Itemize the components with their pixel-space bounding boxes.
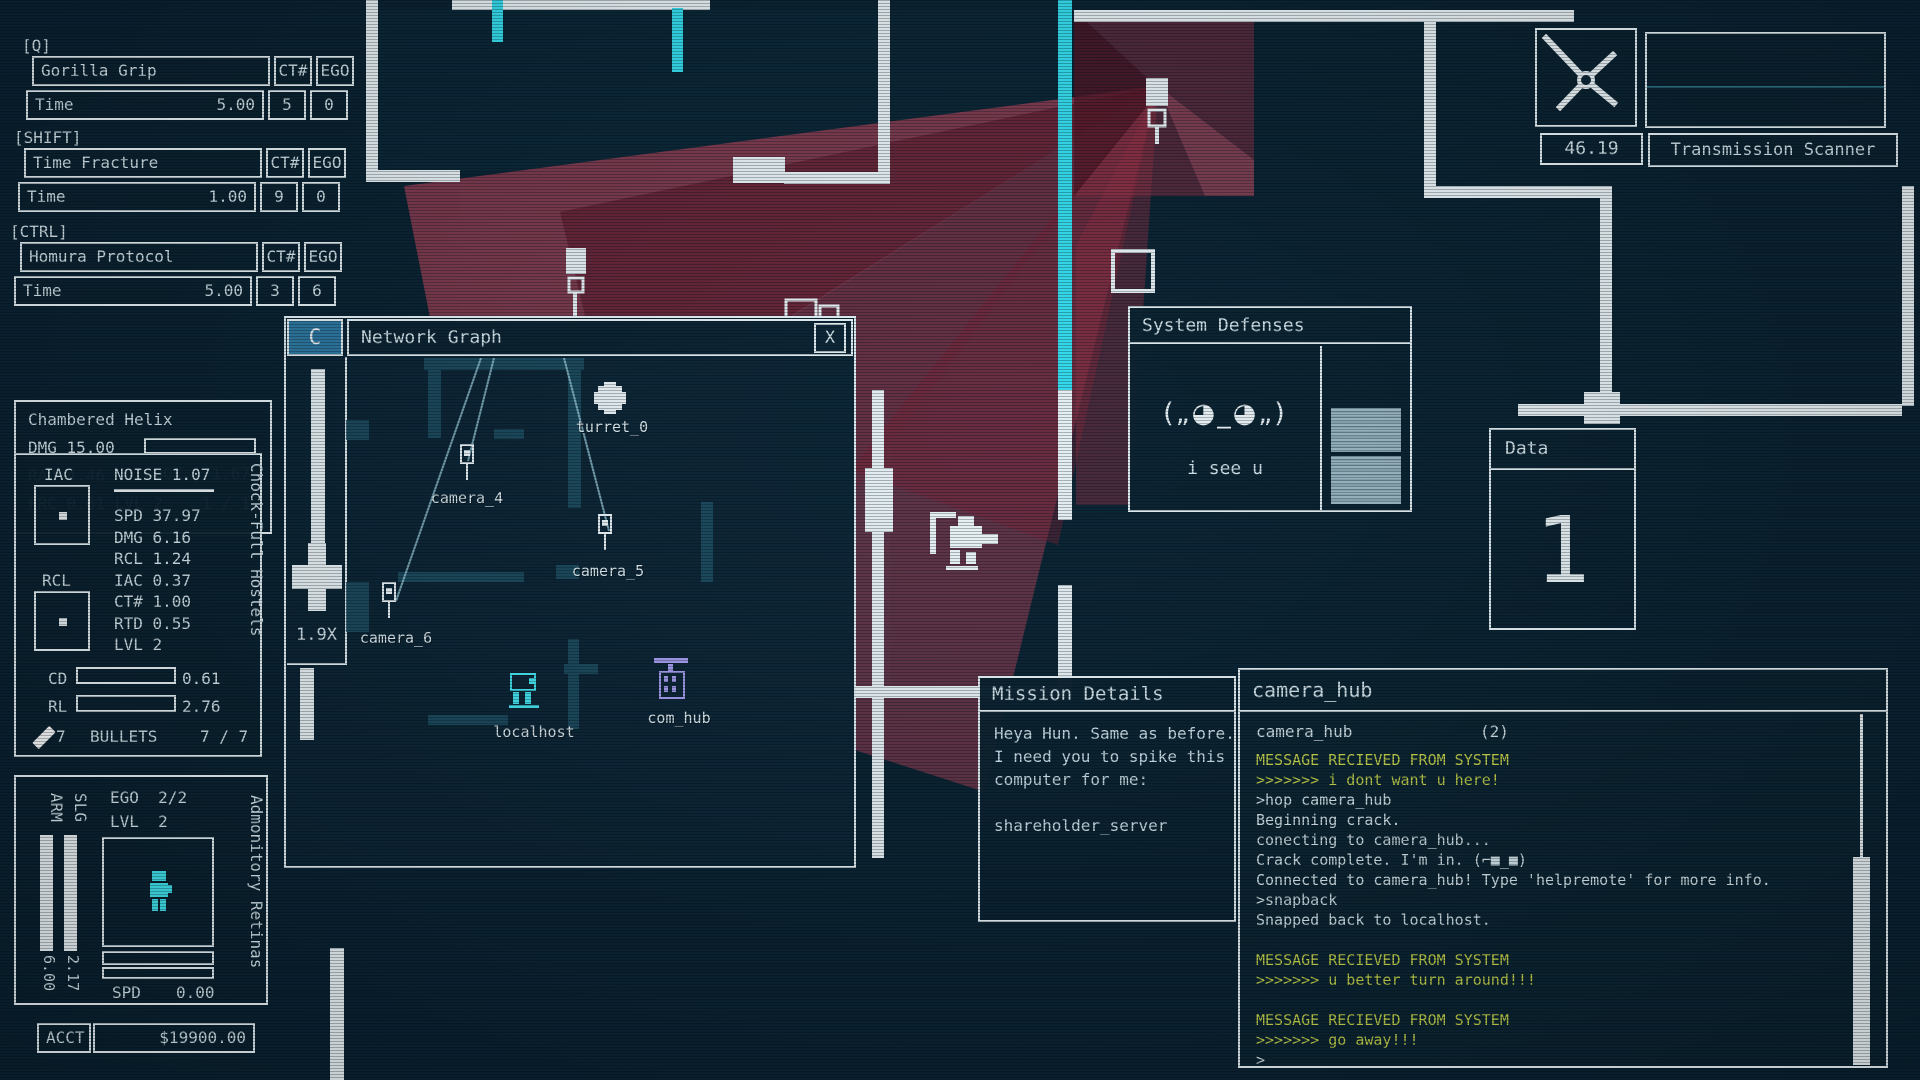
terminal-tab[interactable]: camera_hub — [1256, 722, 1352, 741]
turret-icon[interactable] — [590, 378, 630, 422]
status-bar-2 — [102, 967, 214, 979]
ability-panel-ctrl: [CTRL] Homura Protocol CT# EGO Time5.00 … — [10, 222, 68, 245]
data-count: 1 — [1491, 472, 1634, 628]
ability-key-label: [Q] — [22, 36, 51, 55]
rcl-label: RCL — [42, 571, 71, 590]
terminal-line: conecting to camera_hub... — [1256, 830, 1491, 850]
ego-value: 2/2 — [158, 788, 187, 807]
terminal-titlebar[interactable]: camera_hub — [1240, 670, 1886, 712]
portrait-box — [102, 837, 214, 947]
divider — [1491, 468, 1634, 470]
terminal-line: Crack complete. I'm in. (⌐■_■) — [1256, 850, 1527, 870]
scanner-time-box: 46.19 — [1540, 133, 1643, 165]
weapon-stat: DMG 6.16 — [114, 527, 201, 549]
scanner-time: 46.19 — [1564, 138, 1618, 159]
terminal-line: Snapped back to localhost. — [1256, 910, 1491, 930]
game-screen: [Q] Gorilla Grip CT# EGO Time5.00 5 0 [S… — [0, 0, 1920, 1080]
ct-header: CT# — [274, 56, 312, 86]
scanner-label: Transmission Scanner — [1671, 140, 1876, 160]
node-label-camera_6[interactable]: camera_6 — [346, 629, 466, 647]
terminal-line: Beginning crack. — [1256, 810, 1401, 830]
terminal-system-message: MESSAGE RECIEVED FROM SYSTEM — [1256, 950, 1509, 970]
terminal-line: >hop camera_hub — [1256, 790, 1391, 810]
slg-value: 2.17 — [64, 955, 82, 991]
slg-label: SLG — [71, 793, 90, 822]
ability-key-label: [SHIFT] — [14, 128, 81, 147]
defense-message: i see u — [1130, 458, 1320, 479]
terminal-line: >snapback — [1256, 890, 1337, 910]
grenade-title: Chambered Helix — [28, 410, 173, 429]
weapon-stat: RTD 0.55 — [114, 613, 201, 635]
mission-details-panel: Mission Details Heya Hun. Same as before… — [978, 676, 1236, 922]
ability-name: Gorilla Grip — [41, 58, 157, 84]
collapse-button[interactable]: C — [287, 319, 343, 356]
ct-value: 9 — [260, 182, 298, 212]
ego-label: EGO — [110, 788, 139, 807]
window-titlebar[interactable]: Network Graph — [347, 319, 853, 356]
node-label-camera_5[interactable]: camera_5 — [538, 562, 678, 580]
ability-name: Homura Protocol — [29, 244, 174, 270]
scanner-label-box: Transmission Scanner — [1648, 133, 1898, 167]
ammo-count: 7 — [56, 727, 66, 746]
bullets-label: BULLETS — [90, 727, 157, 746]
ability-name: Time Fracture — [33, 150, 158, 176]
system-defenses-titlebar: System Defenses — [1130, 308, 1410, 344]
stat-value: 1.00 — [208, 184, 247, 210]
slg-bar — [64, 835, 77, 951]
zoom-level: 1.9X — [296, 625, 337, 645]
ct-header: CT# — [266, 148, 304, 178]
clock-box — [1535, 28, 1637, 127]
clock-icon — [1537, 30, 1635, 125]
terminal-scrollbar-thumb[interactable] — [1853, 857, 1870, 1065]
window-title: Network Graph — [361, 327, 502, 348]
mission-line: Heya Hun. Same as before. — [994, 722, 1226, 745]
scanner-display — [1645, 32, 1886, 128]
defense-meter-1 — [1331, 408, 1401, 452]
lvl-value: 2 — [158, 812, 168, 831]
cd-label: CD — [48, 669, 67, 688]
mission-line — [994, 791, 1226, 814]
mission-line: shareholder_server — [994, 814, 1226, 837]
network-graph-window: C Network Graph X 1.9X — [284, 316, 856, 868]
ammo-ratio: 7 / 7 — [200, 727, 248, 746]
rl-value: 2.76 — [182, 697, 221, 716]
stat-value: 5.00 — [216, 92, 255, 118]
weapon-name-vertical: Chock-Full Hostels — [247, 463, 266, 636]
data-title: Data — [1505, 438, 1548, 459]
zoom-slider-track-lower[interactable] — [300, 668, 314, 740]
status-bar-1 — [102, 951, 214, 965]
cook-bar — [144, 438, 256, 454]
terminal-tab-count: (2) — [1480, 722, 1509, 741]
stat-label: Time — [27, 184, 66, 210]
slot-dot — [59, 618, 67, 626]
localhost-icon[interactable] — [508, 672, 542, 716]
node-label-camera_4[interactable]: camera_4 — [397, 489, 537, 507]
mission-title: Mission Details — [992, 683, 1164, 705]
spd-value: 0.00 — [176, 983, 215, 1002]
terminal-window[interactable]: camera_hub camera_hub (2) MESSAGE RECIEV… — [1238, 668, 1888, 1068]
system-defenses-panel: System Defenses („◕_◕„) i see u — [1128, 306, 1412, 512]
account-label: ACCT — [37, 1023, 91, 1053]
terminal-system-message: MESSAGE RECIEVED FROM SYSTEM — [1256, 750, 1509, 770]
character-sprite — [144, 871, 174, 915]
node-label-turret_0[interactable]: turret_0 — [542, 418, 682, 436]
arm-bar — [40, 835, 53, 951]
terminal-line: Connected to camera_hub! Type 'helpremot… — [1256, 870, 1771, 890]
weapon-panel: IAC NOISE 1.07 SPD 37.97DMG 6.16RCL 1.24… — [14, 453, 262, 757]
com_hub-icon[interactable] — [652, 656, 692, 706]
ability-panel-shift: [SHIFT] Time Fracture CT# EGO Time1.00 9… — [14, 128, 81, 151]
zoom-slider-track[interactable] — [311, 369, 325, 545]
weapon-stats-list: SPD 37.97DMG 6.16RCL 1.24IAC 0.37CT# 1.0… — [114, 505, 201, 656]
rl-label: RL — [48, 697, 67, 716]
scanner-trace-line — [1647, 86, 1884, 88]
mission-line: computer for me: — [994, 768, 1226, 791]
terminal-scrollbar-track[interactable] — [1860, 714, 1863, 857]
lvl-label: LVL — [110, 812, 139, 831]
camera-icon[interactable] — [598, 514, 612, 556]
data-panel: Data 1 — [1489, 428, 1636, 630]
arm-value: 6.00 — [40, 955, 58, 991]
divider — [114, 489, 214, 492]
camera-icon[interactable] — [460, 444, 474, 486]
stat-label: Time — [35, 92, 74, 118]
ct-value: 5 — [268, 90, 306, 120]
camera-icon[interactable] — [382, 582, 396, 624]
mission-line: I need you to spike this — [994, 745, 1226, 768]
cd-bar — [76, 667, 176, 684]
ego-value: 0 — [302, 182, 340, 212]
graph-content[interactable]: turret_0camera_4camera_5camera_6localhos… — [346, 358, 854, 866]
terminal-line: > — [1256, 1050, 1265, 1070]
ego-value: 0 — [310, 90, 348, 120]
ego-header: EGO — [308, 148, 346, 178]
cd-value: 0.61 — [182, 669, 221, 688]
mission-titlebar: Mission Details — [980, 678, 1234, 712]
weapon-stat: IAC 0.37 — [114, 570, 201, 592]
terminal-system-message: >>>>>>> go away!!! — [1256, 1030, 1419, 1050]
terminal-title: camera_hub — [1252, 678, 1372, 702]
node-label-com_hub[interactable]: com_hub — [609, 709, 749, 727]
rl-bar — [76, 695, 176, 712]
ct-header: CT# — [262, 242, 300, 272]
augment-name-vertical: Admonitory Retinas — [247, 795, 266, 968]
ego-header: EGO — [304, 242, 342, 272]
slot-dot — [59, 512, 67, 520]
terminal-output[interactable]: MESSAGE RECIEVED FROM SYSTEM>>>>>>> i do… — [1240, 750, 1886, 1066]
close-button[interactable]: X — [814, 323, 846, 353]
ego-value: 6 — [298, 276, 336, 306]
ego-header: EGO — [316, 56, 354, 86]
terminal-system-message: >>>>>>> u better turn around!!! — [1256, 970, 1536, 990]
iac-slot[interactable] — [34, 485, 90, 545]
character-panel: EGO 2/2 LVL 2 ARM SLG 6.00 2.17 SPD 0.00… — [14, 775, 268, 1005]
stat-value: 5.00 — [204, 278, 243, 304]
node-label-localhost[interactable]: localhost — [464, 723, 604, 741]
noise-label: NOISE 1.07 — [114, 465, 210, 484]
defense-meter-2 — [1331, 456, 1401, 504]
terminal-system-message: >>>>>>> i dont want u here! — [1256, 770, 1500, 790]
ct-value: 3 — [256, 276, 294, 306]
account-value: $19900.00 — [93, 1023, 255, 1053]
ability-key-label: [CTRL] — [10, 222, 68, 241]
terminal-system-message: MESSAGE RECIEVED FROM SYSTEM — [1256, 1010, 1509, 1030]
mission-body: Heya Hun. Same as before.I need you to s… — [994, 722, 1226, 837]
terminal-tab-label: camera_hub — [1256, 722, 1352, 741]
zoom-sidebar: 1.9X — [287, 357, 347, 665]
weapon-stat: CT# 1.00 — [114, 591, 201, 613]
weapon-stat: SPD 37.97 — [114, 505, 201, 527]
stat-label: Time — [23, 278, 62, 304]
rcl-slot[interactable] — [34, 591, 90, 651]
system-defenses-title: System Defenses — [1142, 315, 1305, 336]
spd-label: SPD — [112, 983, 141, 1002]
weapon-stat: RCL 1.24 — [114, 548, 201, 570]
ability-panel-q: [Q] Gorilla Grip CT# EGO Time5.00 5 0 — [22, 36, 51, 59]
arm-label: ARM — [47, 793, 66, 822]
bullet-icon — [32, 726, 55, 749]
iac-label: IAC — [44, 465, 73, 484]
defense-emoticon: („◕_◕„) — [1130, 398, 1320, 429]
weapon-stat: LVL 2 — [114, 634, 201, 656]
